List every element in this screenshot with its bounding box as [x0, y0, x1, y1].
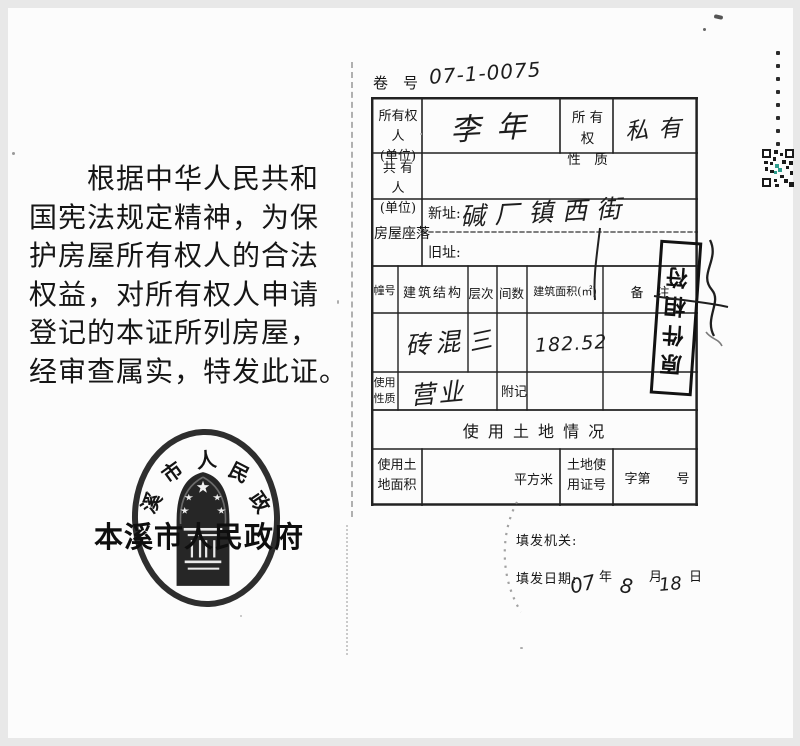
col-header-structure: 建筑结构 — [399, 282, 467, 301]
fold-dashed-line — [351, 62, 353, 517]
issuing-authority-name: 本溪市人民政府 — [94, 514, 304, 556]
land-use-title: 使 用 土 地 情 况 — [371, 418, 698, 442]
land-area-label: 使用土 地面积 — [375, 456, 419, 496]
fold-dashed-line-lower — [346, 525, 348, 655]
annex-label: 附记 — [501, 381, 527, 400]
year-unit: 年 — [599, 566, 612, 585]
cert-number-label: 字第 号 — [618, 468, 696, 487]
scanned-certificate-page: 根据中华人民共和 国宪法规定精神，为保 护房屋所有权人的合法 权益，对所有权人申… — [0, 0, 800, 746]
issue-day-value: 18 — [658, 573, 683, 596]
scan-speck — [95, 247, 98, 250]
preamble-paragraph: 根据中华人民共和 国宪法规定精神，为保 护房屋所有权人的合法 权益，对所有权人申… — [29, 160, 348, 391]
col-header-building-no: 幢号 — [372, 282, 397, 298]
square-meters-label: 平方米 — [514, 469, 553, 488]
volume-no-label: 卷 号 — [373, 72, 418, 93]
day-unit: 日 — [689, 566, 702, 585]
owner-value: 李年 — [449, 101, 543, 150]
scan-speck — [520, 647, 523, 649]
co-owner-label: 共 有 人 (单位) — [376, 159, 420, 219]
ownership-nature-label: 所 有 权 性 质 — [564, 108, 611, 171]
old-address-label: 旧址: — [428, 242, 461, 262]
house-location-label: 房屋座落 — [374, 223, 430, 243]
col-header-floors: 层次 — [466, 283, 496, 302]
structure-value: 砖混 — [404, 321, 467, 362]
scan-speck — [240, 615, 242, 617]
scan-speck — [337, 300, 339, 304]
scan-speck — [12, 152, 15, 155]
usage-nature-value: 营业 — [409, 372, 468, 413]
col-header-rooms: 间数 — [497, 283, 526, 302]
binding-dots — [776, 51, 780, 155]
new-address-label: 新址: — [428, 203, 461, 223]
faint-stamp-residue-arc — [495, 498, 545, 618]
area-value: 182.52 — [534, 331, 608, 357]
owner-label: 所有权人 (单位) — [376, 107, 420, 167]
usage-nature-label: 使用 性质 — [372, 375, 397, 407]
handwritten-signature — [648, 232, 733, 352]
scan-speck — [420, 133, 422, 135]
col-header-area: 建筑面积(㎡) — [528, 283, 602, 299]
seal-arc-char: 人 — [193, 443, 219, 469]
scan-speck — [703, 28, 706, 31]
land-cert-label: 土地使 用证号 — [563, 456, 610, 496]
ownership-nature-value: 私有 — [624, 108, 692, 147]
qr-code-mark — [762, 149, 794, 187]
